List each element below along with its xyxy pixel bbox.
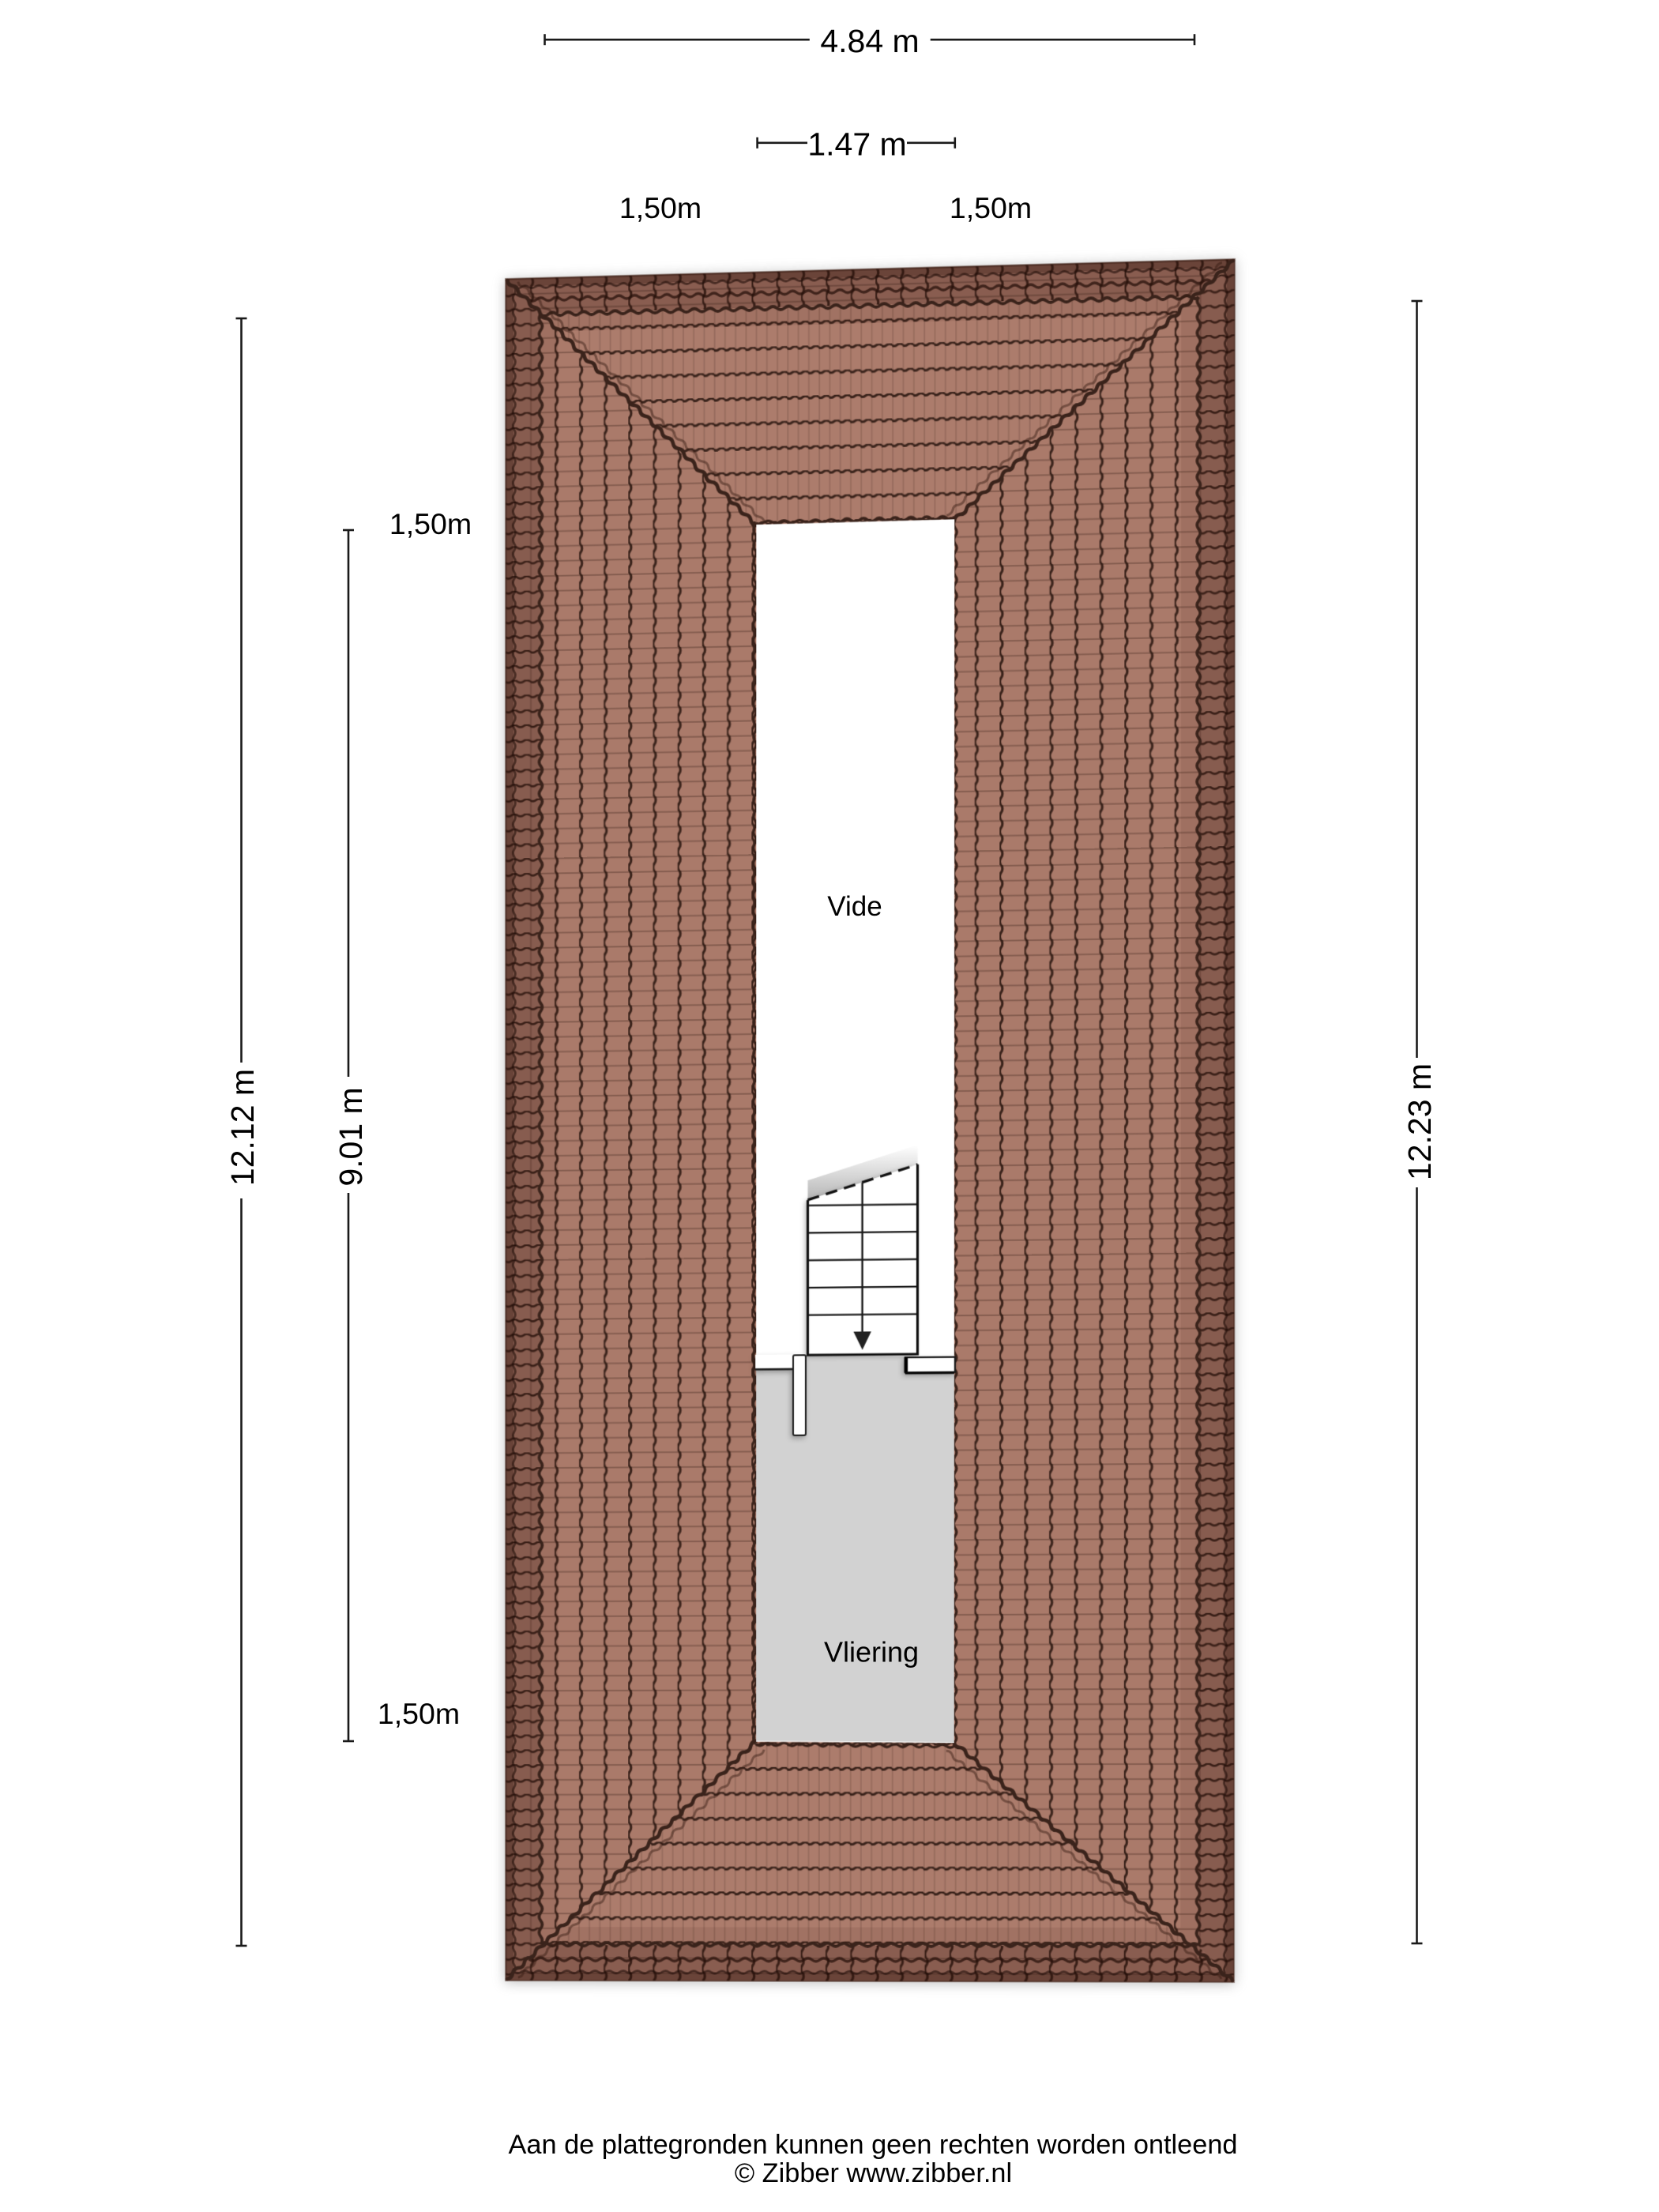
svg-text:4.84 m: 4.84 m: [820, 23, 919, 59]
svg-text:12.23 m: 12.23 m: [1401, 1063, 1438, 1180]
svg-text:Aan de plattegronden kunnen ge: Aan de plattegronden kunnen geen rechten…: [509, 2130, 1238, 2160]
svg-text:1,50m: 1,50m: [389, 507, 472, 540]
svg-text:1,50m: 1,50m: [378, 1697, 460, 1730]
svg-text:1,50m: 1,50m: [950, 191, 1032, 224]
svg-text:9.01 m: 9.01 m: [333, 1087, 369, 1186]
svg-text:1,50m: 1,50m: [619, 191, 702, 224]
svg-text:12.12 m: 12.12 m: [224, 1069, 261, 1186]
svg-text:Vliering: Vliering: [824, 1636, 919, 1668]
svg-text:Vide: Vide: [827, 891, 882, 922]
svg-text:1.47 m: 1.47 m: [807, 126, 906, 163]
svg-text:© Zibber www.zibber.nl: © Zibber www.zibber.nl: [735, 2158, 1012, 2188]
